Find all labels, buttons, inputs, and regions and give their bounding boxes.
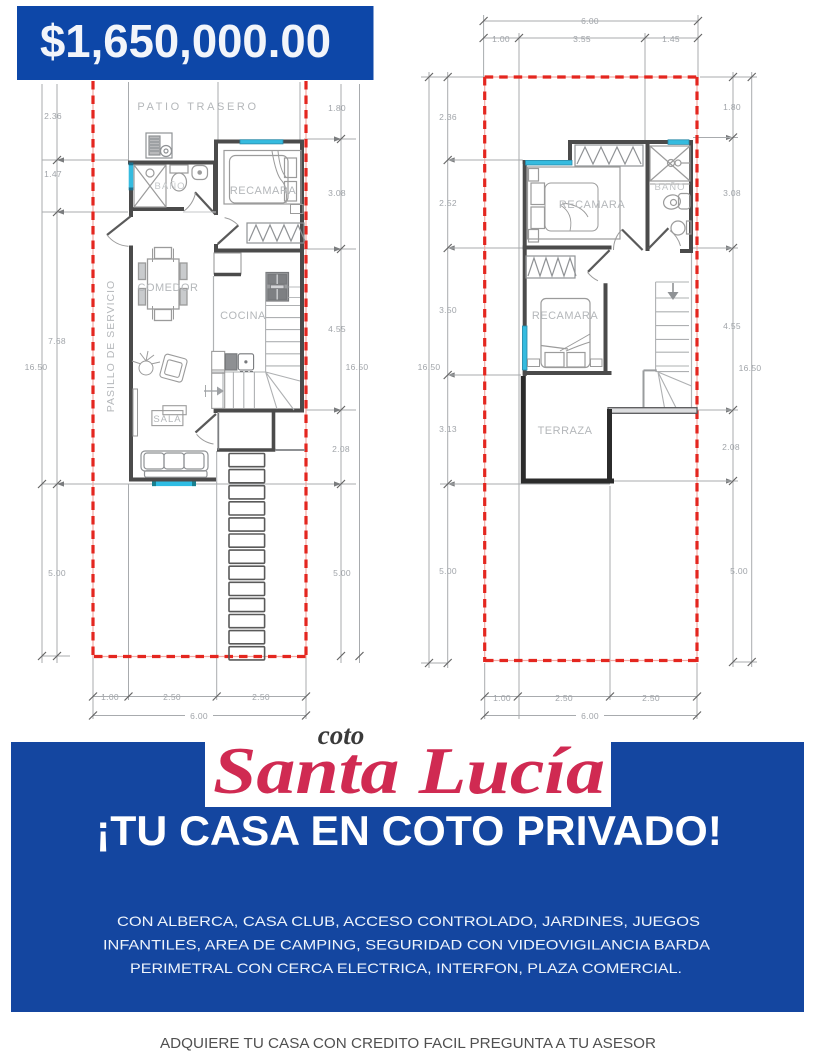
svg-text:$1,650,000.00: $1,650,000.00	[40, 15, 331, 67]
svg-text:¡TU CASA EN COTO PRIVADO!: ¡TU CASA EN COTO PRIVADO!	[96, 807, 722, 854]
svg-text:ADQUIERE TU CASA CON CREDITO F: ADQUIERE TU CASA CON CREDITO FACIL PREGU…	[160, 1036, 656, 1052]
svg-text:PERIMETRAL CON CERCA ELECTRICA: PERIMETRAL CON CERCA ELECTRICA, INTERFON…	[130, 960, 682, 976]
svg-text:CON ALBERCA, CASA CLUB, ACCESO: CON ALBERCA, CASA CLUB, ACCESO CONTROLAD…	[117, 913, 700, 929]
svg-text:INFANTILES, AREA DE CAMPING, S: INFANTILES, AREA DE CAMPING, SEGURIDAD C…	[103, 937, 711, 953]
svg-text:Santa Lucía: Santa Lucía	[213, 734, 605, 808]
